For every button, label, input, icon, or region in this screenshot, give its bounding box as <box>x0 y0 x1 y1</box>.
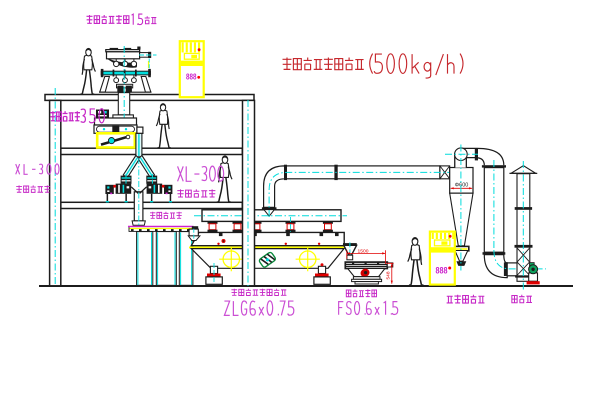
svg-text:1500: 1500 <box>358 249 369 255</box>
svg-text:Φ600: Φ600 <box>455 182 469 188</box>
svg-text:548: 548 <box>386 271 392 279</box>
svg-text:888: 888 <box>186 73 197 82</box>
svg-text:888: 888 <box>436 265 448 275</box>
